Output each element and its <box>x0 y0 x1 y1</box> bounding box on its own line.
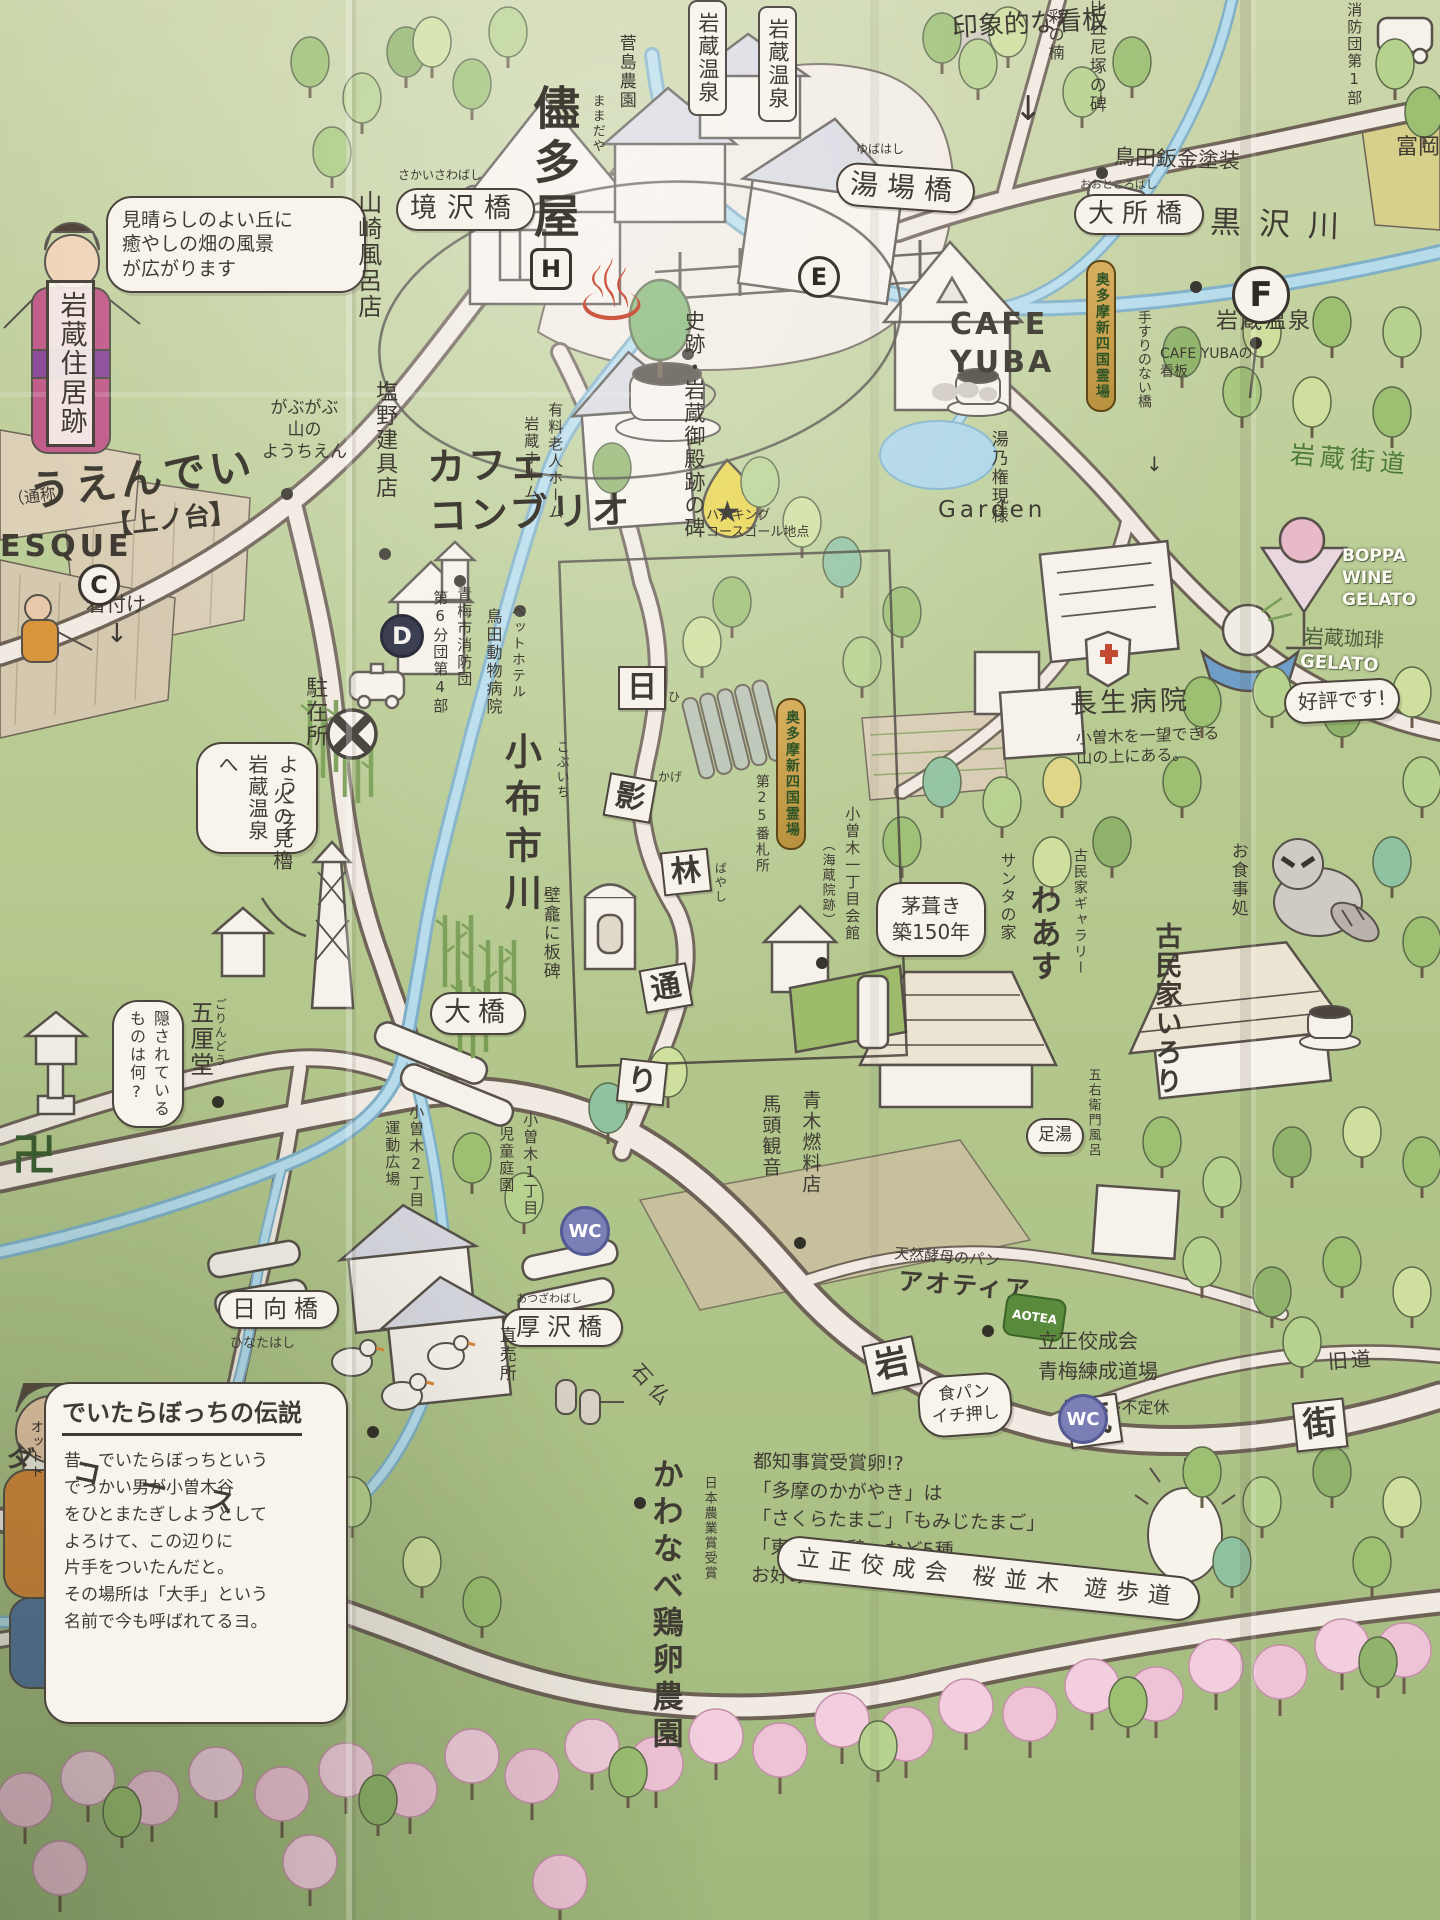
furigana-yubabashi: ゆばはし <box>856 142 904 157</box>
label-rojin-home: 有料老人ホーム <box>545 402 564 521</box>
label-iwakura-coffee: 岩蔵珈琲 <box>1303 624 1384 654</box>
label-nogyo-sho: 日本農業賞受賞 <box>700 1476 717 1581</box>
label-gorindo: 五厘堂 <box>184 1000 215 1078</box>
furigana-hayashi: ばやし <box>712 862 727 904</box>
furigana-sakaisawa: さかいさわばし <box>398 168 482 183</box>
label-aoki-nenryo: 青木燃料店 <box>798 1090 822 1195</box>
label-tomioka: 富岡 <box>1396 134 1440 162</box>
label-gelato: GELATO <box>1299 650 1379 677</box>
furigana-kage: かげ <box>658 770 682 785</box>
bubble-ashiyu: 足湯 <box>1026 1118 1084 1154</box>
furigana-mamadaya: ままだや <box>588 94 605 154</box>
furigana-hinata: ひなたはし <box>230 1336 295 1353</box>
bridge-name-atsuzawa: 厚沢橋 <box>502 1308 623 1347</box>
plaque-iwa: 岩 <box>861 1335 922 1394</box>
label-chokubaisho: 直売所 <box>494 1326 516 1383</box>
sign-iwakura-onsen-1: 岩蔵温泉 <box>688 0 727 116</box>
label-kyudo: 旧道 <box>1327 1346 1375 1375</box>
label-goemon-buro: 五右衛門風呂 <box>1084 1068 1101 1158</box>
label-kurosawa-river: 黒沢川 <box>1209 203 1357 248</box>
furigana-odokoro: おおところばし <box>1080 178 1157 192</box>
label-chuzaisho: 駐在所 <box>300 676 328 748</box>
marker-h: H <box>530 248 572 290</box>
bridge-name-sakaisawa: 境沢橋 <box>396 188 535 231</box>
plaque-ri: り <box>616 1058 668 1107</box>
label-shiseki-goten: 史跡・岩蔵御殿跡の碑 <box>680 310 707 540</box>
label-cafe-yuba: CAFE YUBA <box>950 306 1054 383</box>
label-undo-hiroba-1: 小曽木2丁目 <box>406 1104 425 1209</box>
marker-e: E <box>798 256 840 298</box>
bridge-name-odokoro: 大所橋 <box>1074 194 1204 235</box>
label-kominka-irori: 古民家いろり <box>1148 922 1183 1096</box>
label-kominka-gallery: 古民家ギャラリー <box>1070 848 1088 976</box>
bubble-lookout-hill: 見晴らしのよい丘に 癒やしの畑の風景 が広がります <box>106 196 366 293</box>
bubble-shokupan: 食パン イチ押し <box>916 1371 1014 1439</box>
label-chosei-note: 小曽木を一望できる 山の上にある。 <box>1075 724 1220 770</box>
down-arrow-icon: ↓ <box>106 618 128 651</box>
label-deitara-title: でいたらぼっちの伝説 <box>62 1398 302 1436</box>
illustrated-tourist-map: ★ <box>0 0 1440 1920</box>
label-chosei-hospital: 長生病院 <box>1069 684 1190 723</box>
plaque-hi: 日 <box>618 666 666 710</box>
label-hekigan-itahi: 壁龕に板碑 <box>538 886 560 981</box>
bridge-name-hinata: 日向橋 <box>218 1290 339 1329</box>
label-hinomi-yagura: 火の見櫓 <box>268 784 294 872</box>
label-boppa-wine-gelato: BOPPA WINE GELATO <box>1342 546 1416 611</box>
label-tesuri-bridge: 手すりのない橋 <box>1134 310 1152 408</box>
label-torita-bankin: 鳥田鈑金塗装 <box>1114 144 1241 175</box>
wc-badge-park: WC <box>560 1206 610 1256</box>
furigana-kobuichi: こぶいち <box>552 740 569 800</box>
label-kaizoin-ato: （海蔵院跡） <box>818 838 835 928</box>
label-waasu: わあす <box>1022 884 1062 983</box>
label-kodomo-teien-1: 小曽木1丁目 <box>520 1112 539 1217</box>
label-dai6-bundan: 第6分団第4部 <box>430 590 449 715</box>
furigana-atsuzawa: あつざわばし <box>516 1292 582 1306</box>
onsen-mark-icon: ♨ <box>574 238 649 346</box>
label-kodomo-teien-2: 児童庭園 <box>496 1126 515 1194</box>
sign-iwakura-onsen-2: 岩蔵温泉 <box>758 6 797 122</box>
label-mamadaya: 儘多屋 <box>524 84 583 246</box>
label-kawanabe-farm: かわなべ鶏卵農園 <box>644 1458 684 1754</box>
bubble-kohyo: 好評です! <box>1283 677 1401 725</box>
marker-c: C <box>78 564 120 606</box>
bridge-name-ohashi: 大橋 <box>430 992 526 1035</box>
label-torita-animal-hospital: 鳥田動物病院 <box>482 608 502 716</box>
label-oshokujidokoro: お食事処 <box>1226 842 1248 918</box>
label-fudasho-25: 第25番札所 <box>752 774 770 874</box>
label-shiono-tateguten: 塩野建具店 <box>370 380 398 500</box>
gold-sign-reijo-25: 奥多摩新四国霊場 <box>776 698 806 850</box>
label-shobodan-1: 消防団第1部 <box>1344 2 1363 107</box>
label-santa-house: サンタの家 <box>996 852 1016 942</box>
bubble-hidden-what: 隠されている ものは何? <box>112 1000 184 1128</box>
plaque-hayashi: 林 <box>660 848 712 897</box>
bubble-kayabuki-150: 茅葺き 築150年 <box>876 882 986 957</box>
label-kaikan: 小曽木一丁目会館 <box>842 806 861 942</box>
down-arrow-icon: ↓ <box>1014 88 1043 132</box>
label-rissho-dojo: 立正佼成会 青梅練成道場 <box>1038 1326 1158 1386</box>
manji-temple-icon: 卍 <box>12 1128 56 1184</box>
label-iwakura-home: 岩蔵ホーム <box>521 416 540 501</box>
label-sugashima-noen: 菅島農園 <box>614 34 636 110</box>
label-cafe-yuba-sign: CAFE YUBAの 看板 <box>1160 346 1253 382</box>
label-ome-shobodan: 青梅市消防団 <box>454 586 473 688</box>
label-garden: Garden <box>938 496 1046 525</box>
label-undo-hiroba-2: 運動広場 <box>382 1120 401 1188</box>
marker-d: D <box>380 614 424 658</box>
plaque-tori: 通 <box>639 962 694 1014</box>
down-arrow-icon: ↓ <box>1146 452 1163 478</box>
label-yamazaki-furoten: 山崎風呂店 <box>352 190 383 320</box>
label-hiking-goal: ハイキング コースゴール地点 <box>706 508 809 541</box>
label-gabugabu-yochien: がぶがぶ 山の ようちえん <box>262 398 347 463</box>
label-bato-kannon: 馬頭観音 <box>758 1094 782 1178</box>
label-bikuni-zuka: 比丘尼塚の碑 <box>1084 0 1106 114</box>
furigana-hi: ひ <box>668 690 680 705</box>
label-kobuichi-river: 小布市川 <box>496 732 543 920</box>
label-iwakura-jukyoato: 岩蔵住居跡 <box>46 280 95 447</box>
bubble-welcome-onsen: ようこそ 岩蔵温泉 へ <box>196 742 318 854</box>
label-pet-hotel: ペットホテル <box>508 604 526 700</box>
gold-sign-reijo-north: 奥多摩新四国霊場 <box>1086 260 1116 412</box>
wc-badge-dojo: WC <box>1058 1394 1108 1444</box>
label-ayanokusu: 彩の楠 <box>1044 8 1064 62</box>
plaque-kage: 影 <box>603 772 658 824</box>
marker-f: F <box>1232 266 1290 324</box>
plaque-machi: 街 <box>1292 1397 1349 1452</box>
